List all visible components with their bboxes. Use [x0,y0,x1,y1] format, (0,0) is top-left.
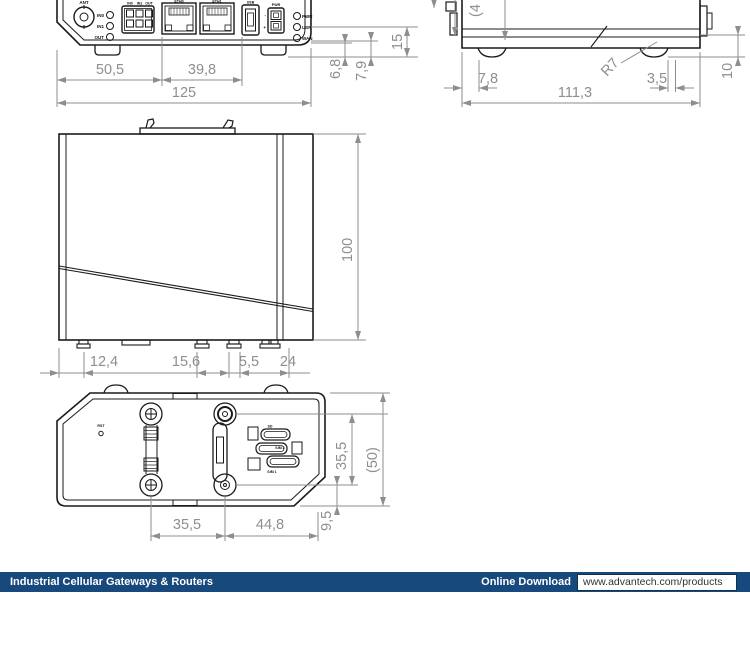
top-view-dimensions: 100 12,4 15,6 5,5 24 [40,134,366,378]
dim-r7: R7 [598,55,622,79]
sim2-label: SIM 2 [275,446,284,450]
screw-boss-bottom-left [140,474,162,496]
din-hook-right [223,120,233,128]
screw-boss-top-left [140,403,162,425]
center-slot [213,423,227,482]
dim-12-4: 12,4 [90,354,118,370]
io-terminal-connector: IN0 IN1 OUT [122,2,154,34]
led-in1-label: IN1 [97,24,105,29]
pin-in0-label: IN0 [127,2,133,6]
dim-39-8: 39,8 [188,62,216,78]
din-rail-plate [140,128,235,134]
side-foot-left [478,48,506,57]
usb-label: USB [247,1,255,5]
bottom-view: SD SIM 2 SIM 1 RST [57,385,325,506]
eth1-label: ETH1 [212,0,221,4]
dim-3-5: 3,5 [647,71,667,87]
status-led-column: PWR USR WAN [294,13,314,42]
eth0-port: ETH0 [162,0,196,34]
technical-drawing: ANT IN0 IN1 OUT IN0 IN1 OUT [0,0,750,565]
front-foot-right [261,45,286,55]
dim-50-5: 50,5 [96,62,124,78]
dim-15: 15 [390,34,406,50]
dim-50-paren: (50) [365,447,381,473]
dim-24: 24 [280,354,296,370]
power-connector: PWR - + [263,3,284,33]
screw-boss-top-right [214,403,236,425]
rst-label: RST [97,424,105,428]
top-view [59,119,313,348]
plus-mark: + [263,25,266,30]
screw-boss-bottom-right [214,474,236,496]
online-download-label: Online Download [481,576,571,588]
pin-out-label: OUT [145,2,153,6]
dim-44-8: 44,8 [256,517,284,533]
front-view-dimensions: 50,5 39,8 125 6,8 7,9 15 [57,27,418,107]
usb-port: USB [242,1,259,35]
led-in0-label: IN0 [97,13,105,18]
minus-mark: - [265,13,267,18]
pwr-label: PWR [272,3,281,7]
dim-6-8: 6,8 [328,59,344,79]
footer-download-area: Online Download www.advantech.com/produc… [481,574,737,591]
side-connector [700,6,707,36]
product-category-label: Industrial Cellular Gateways & Routers [10,576,213,588]
sim-card-area: SD SIM 2 SIM 1 [248,425,302,474]
dim-5-5: 5,5 [239,354,259,370]
dim-15-6: 15,6 [172,354,200,370]
dim-9-5: 9,5 [319,511,335,531]
eth1-port: ETH1 [200,0,234,34]
led-wan-label: WAN [302,36,313,41]
led-pwr-label: PWR [302,14,313,19]
front-foot-left [95,45,120,55]
dim-111-3: 111,3 [558,85,592,101]
sim1-label: SIM 1 [267,470,276,474]
dim-100: 100 [340,238,356,262]
sd-label: SD [268,425,273,429]
dim-partial-4: (4 [468,4,484,17]
side-view [446,0,712,57]
dim-125: 125 [172,85,196,101]
pin-in1-label: IN1 [137,2,143,6]
io-led-column: IN0 IN1 OUT [95,12,114,41]
reset-button: RST [97,424,105,436]
dim-10: 10 [720,63,736,79]
led-out-label: OUT [95,35,105,40]
din-hook-left [146,119,154,128]
dim-7-8: 7,8 [478,71,498,87]
front-panel-view: ANT IN0 IN1 OUT IN0 IN1 OUT [57,0,313,55]
dim-7-9: 7,9 [354,61,370,81]
download-url: www.advantech.com/products [577,574,737,591]
antenna-label: ANT [79,0,88,5]
led-usr-label: USR [302,25,312,30]
footer-bar: Industrial Cellular Gateways & Routers O… [0,572,750,592]
eth0-label: ETH0 [174,0,183,4]
dim-35-5-vertical: 35,5 [334,442,350,470]
antenna-connector: ANT [74,0,94,29]
dim-35-5-horizontal: 35,5 [173,517,201,533]
